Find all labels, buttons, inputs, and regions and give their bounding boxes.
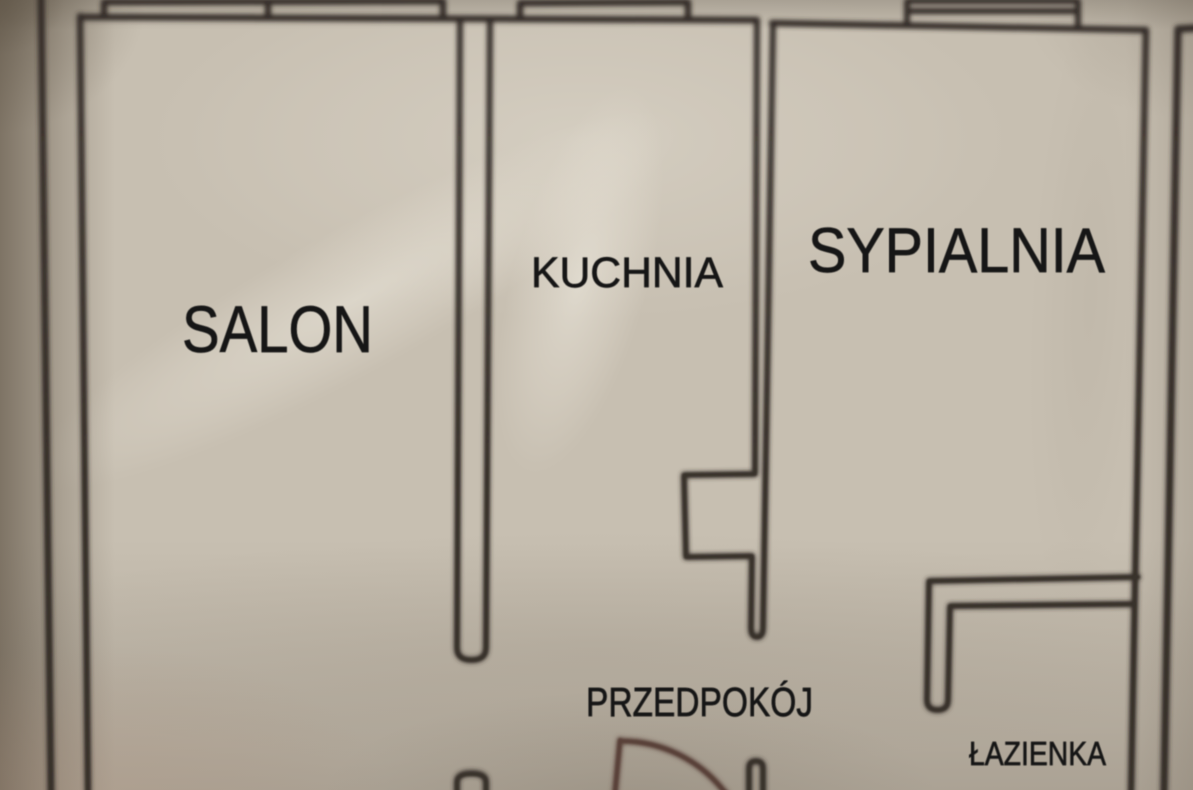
svg-text:KUCHNIA: KUCHNIA bbox=[531, 249, 723, 297]
svg-text:SALON: SALON bbox=[182, 292, 373, 366]
svg-text:SYPIALNIA: SYPIALNIA bbox=[808, 216, 1105, 286]
svg-text:ŁAZIENKA: ŁAZIENKA bbox=[969, 735, 1106, 772]
svg-text:PRZEDPOKÓJ: PRZEDPOKÓJ bbox=[586, 679, 813, 725]
